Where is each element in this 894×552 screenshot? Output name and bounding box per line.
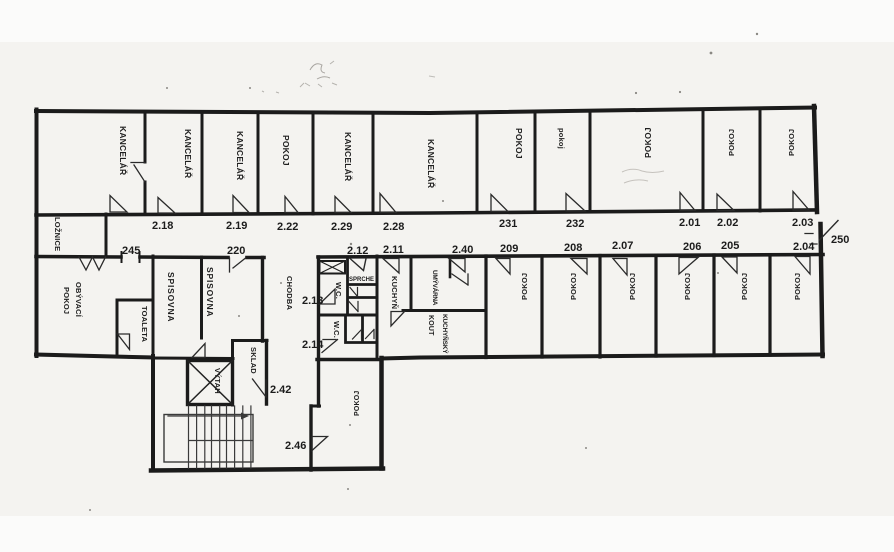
svg-text:POKOJ: POKOJ <box>793 273 802 300</box>
svg-text:POKOJ: POKOJ <box>569 273 578 300</box>
svg-text:POKOJ: POKOJ <box>683 273 692 300</box>
svg-text:POKOJ: POKOJ <box>514 128 524 159</box>
svg-text:SPRCHE: SPRCHE <box>349 277 374 283</box>
svg-text:POKOJ: POKOJ <box>354 390 361 416</box>
svg-text:2.11: 2.11 <box>383 244 404 256</box>
svg-text:220: 220 <box>227 245 245 257</box>
svg-text:POKOJ: POKOJ <box>643 127 653 158</box>
svg-text:OBÝVACÍ: OBÝVACÍ <box>74 282 83 318</box>
svg-text:W.C.: W.C. <box>332 321 341 338</box>
svg-text:2.07: 2.07 <box>612 240 633 252</box>
svg-text:LOŽNICE: LOŽNICE <box>53 217 62 251</box>
svg-text:KANCELÁŘ: KANCELÁŘ <box>235 131 246 180</box>
svg-text:2.12: 2.12 <box>347 245 368 257</box>
svg-text:2.40: 2.40 <box>452 244 473 256</box>
svg-text:250: 250 <box>831 234 849 246</box>
svg-text:pokoj: pokoj <box>557 128 566 149</box>
svg-text:POKOJ: POKOJ <box>727 129 736 156</box>
svg-text:POKOJ: POKOJ <box>281 135 291 166</box>
svg-text:KUCHYŇ: KUCHYŇ <box>390 276 399 309</box>
svg-text:VÝTAH: VÝTAH <box>213 368 222 394</box>
svg-text:2.13: 2.13 <box>302 295 323 307</box>
svg-text:232: 232 <box>566 218 584 230</box>
svg-text:SPISOVNA: SPISOVNA <box>166 272 176 322</box>
svg-text:2.01: 2.01 <box>679 217 700 229</box>
svg-text:KANCELÁŘ: KANCELÁŘ <box>183 129 194 178</box>
svg-text:2.03: 2.03 <box>792 217 813 229</box>
svg-text:POKOJ: POKOJ <box>740 273 749 300</box>
svg-text:POKOJ: POKOJ <box>628 273 637 300</box>
svg-text:208: 208 <box>564 242 582 254</box>
svg-text:W.C.: W.C. <box>334 282 343 299</box>
svg-text:SKLAD: SKLAD <box>249 347 258 374</box>
svg-text:206: 206 <box>683 241 701 253</box>
svg-text:2.04: 2.04 <box>793 241 815 253</box>
svg-text:245: 245 <box>122 245 140 257</box>
svg-text:2.46: 2.46 <box>285 440 306 452</box>
svg-text:205: 205 <box>721 240 739 252</box>
svg-text:2.02: 2.02 <box>717 217 738 229</box>
svg-text:POKOJ: POKOJ <box>787 129 796 156</box>
svg-text:POKOJ: POKOJ <box>62 287 71 314</box>
svg-text:KUCHYŇSKÝ: KUCHYŇSKÝ <box>441 314 450 354</box>
svg-text:2.42: 2.42 <box>270 384 291 396</box>
svg-text:KANCELÁŘ: KANCELÁŘ <box>426 139 437 188</box>
svg-text:CHODBA: CHODBA <box>285 276 294 310</box>
svg-text:KOUT: KOUT <box>427 315 434 336</box>
svg-text:2.18: 2.18 <box>152 220 173 232</box>
svg-text:2.19: 2.19 <box>226 220 247 232</box>
svg-text:UMÝVÁRNA: UMÝVÁRNA <box>431 270 440 306</box>
svg-text:2.22: 2.22 <box>277 221 298 233</box>
svg-text:209: 209 <box>500 243 518 255</box>
svg-text:KANCELÁŘ: KANCELÁŘ <box>343 132 354 181</box>
svg-text:231: 231 <box>499 218 517 230</box>
svg-text:SPISOVNA: SPISOVNA <box>205 267 215 317</box>
svg-text:TOALETA: TOALETA <box>140 306 149 343</box>
svg-text:2.14: 2.14 <box>302 339 324 351</box>
svg-text:POKOJ: POKOJ <box>520 273 529 300</box>
svg-text:2.29: 2.29 <box>331 221 352 233</box>
svg-text:2.28: 2.28 <box>383 221 404 233</box>
svg-text:KANCELÁŘ: KANCELÁŘ <box>118 126 129 175</box>
